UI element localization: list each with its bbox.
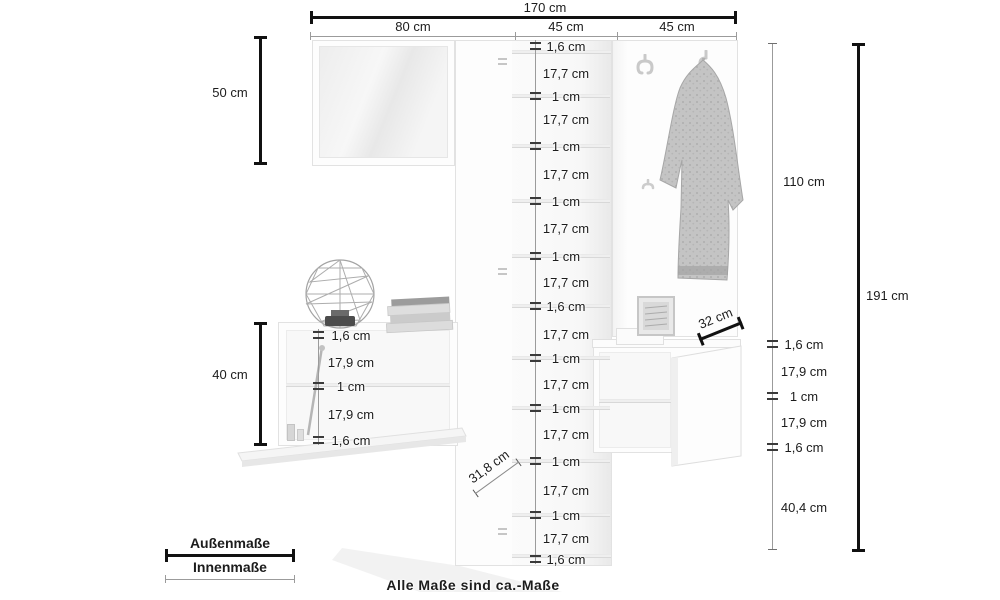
dim-label-shoe_cabinet: 1 cm bbox=[538, 352, 594, 366]
dim-tick bbox=[313, 442, 324, 444]
dim-tick bbox=[313, 331, 324, 333]
dim-label-bench: 1 cm bbox=[779, 390, 829, 404]
dim-label-shoe_cabinet: 1 cm bbox=[538, 250, 594, 264]
dim-label-sideboard: 17,9 cm bbox=[327, 408, 375, 422]
door-hinge-icon bbox=[498, 58, 507, 65]
dim-label-sideboard: 1,6 cm bbox=[327, 329, 375, 343]
dim-label-section-3: 45 cm bbox=[639, 20, 715, 34]
dim-tick bbox=[767, 449, 778, 451]
dim-tick bbox=[313, 337, 324, 339]
dim-line-right-inner bbox=[772, 43, 773, 550]
footnote: Alle Maße sind ca.-Maße bbox=[353, 578, 593, 593]
dim-label-section-1: 80 cm bbox=[375, 20, 451, 34]
dim-label-bench: 1,6 cm bbox=[779, 441, 829, 455]
dim-cap bbox=[254, 162, 267, 165]
mirror-glass bbox=[319, 46, 448, 158]
dim-line-sections bbox=[310, 36, 737, 37]
dim-tick bbox=[767, 346, 778, 348]
decor-bottle bbox=[297, 429, 304, 441]
dim-label-bench: 1,6 cm bbox=[779, 338, 829, 352]
dim-cap bbox=[254, 443, 267, 446]
dim-label-shoe_cabinet: 17,7 cm bbox=[538, 67, 594, 81]
dim-label-shoe_cabinet: 1 cm bbox=[538, 140, 594, 154]
dim-label-shoe_cabinet: 17,7 cm bbox=[538, 168, 594, 182]
dim-label-section-2: 45 cm bbox=[528, 20, 604, 34]
dim-line-mirror-height bbox=[259, 36, 262, 165]
dim-tick bbox=[313, 382, 324, 384]
dim-label-shoe_cabinet: 17,7 cm bbox=[538, 532, 594, 546]
dim-label-total-height: 191 cm bbox=[866, 289, 920, 303]
dim-tick bbox=[767, 340, 778, 342]
dim-label-bench: 17,9 cm bbox=[779, 365, 829, 379]
dim-label-shoe_cabinet: 17,7 cm bbox=[538, 484, 594, 498]
dim-tick bbox=[313, 436, 324, 438]
dim-label-shoe_cabinet: 1 cm bbox=[538, 402, 594, 416]
dim-tick bbox=[617, 32, 618, 40]
dim-tick bbox=[310, 32, 311, 40]
wire-ball-decor bbox=[298, 258, 382, 332]
dim-label-shoe_cabinet: 1,6 cm bbox=[538, 40, 594, 54]
dim-line-sideboard-height bbox=[259, 322, 262, 446]
dim-tick bbox=[515, 32, 516, 40]
dim-cap bbox=[768, 549, 777, 550]
dim-label-shoe_cabinet: 1 cm bbox=[538, 455, 594, 469]
dim-label-shoe_cabinet: 1,6 cm bbox=[538, 553, 594, 567]
dim-label-shoe_cabinet: 17,7 cm bbox=[538, 276, 594, 290]
dim-tick bbox=[767, 398, 778, 400]
bench-shelf bbox=[599, 399, 671, 403]
dim-line-sideboard-inner bbox=[318, 329, 319, 445]
dim-label-shoe_cabinet: 1 cm bbox=[538, 90, 594, 104]
dim-cap bbox=[852, 43, 865, 46]
bench-open-door bbox=[670, 342, 746, 470]
decor-bottle bbox=[287, 424, 295, 441]
dim-label-shoe_cabinet: 1 cm bbox=[538, 195, 594, 209]
dim-label-sideboard: 1,6 cm bbox=[327, 434, 375, 448]
dim-label-shoe_cabinet: 17,7 cm bbox=[538, 113, 594, 127]
dim-tick bbox=[313, 388, 324, 390]
dim-label-shoe_cabinet: 17,7 cm bbox=[538, 222, 594, 236]
dim-tick bbox=[736, 32, 737, 40]
legend-inner-line bbox=[165, 579, 295, 580]
dim-cap bbox=[254, 36, 267, 39]
dim-line-total-height bbox=[857, 43, 860, 552]
dim-label-shoe_cabinet: 17,7 cm bbox=[538, 428, 594, 442]
dim-tick bbox=[767, 443, 778, 445]
door-hinge-icon bbox=[498, 268, 507, 275]
door-hinge-icon bbox=[498, 528, 507, 535]
dim-label-sideboard-height: 40 cm bbox=[206, 368, 254, 382]
dim-label-sideboard: 17,9 cm bbox=[327, 356, 375, 370]
dim-cap bbox=[734, 11, 737, 24]
dim-label-shoe_cabinet: 1 cm bbox=[538, 509, 594, 523]
dim-label-bench: 40,4 cm bbox=[779, 501, 829, 515]
furniture-dimension-diagram: 170 cm 80 cm 45 cm 45 cm 50 cm 40 cm 110… bbox=[0, 0, 1000, 600]
dim-cap bbox=[310, 11, 313, 24]
dim-label-shoe_cabinet: 17,7 cm bbox=[538, 328, 594, 342]
dim-label-bench: 17,9 cm bbox=[779, 416, 829, 430]
dim-label-shoe_cabinet: 1,6 cm bbox=[538, 300, 594, 314]
dim-label-sideboard: 1 cm bbox=[327, 380, 375, 394]
dim-cap bbox=[254, 322, 267, 325]
dim-tick bbox=[767, 392, 778, 394]
picture-frame bbox=[637, 296, 675, 336]
hanging-coat bbox=[653, 58, 747, 288]
dim-label-shoe_cabinet: 17,7 cm bbox=[538, 378, 594, 392]
dim-label-mirror-height: 50 cm bbox=[206, 86, 254, 100]
legend-outer-label: Außenmaße bbox=[165, 536, 295, 551]
legend-inner-label: Innenmaße bbox=[165, 560, 295, 575]
dim-cap bbox=[852, 549, 865, 552]
books-stack bbox=[384, 294, 456, 334]
dim-cap bbox=[768, 43, 777, 44]
legend-outer-line bbox=[165, 554, 295, 557]
dim-label-panel-height: 110 cm bbox=[779, 175, 829, 189]
dim-label-total-width: 170 cm bbox=[480, 1, 610, 15]
